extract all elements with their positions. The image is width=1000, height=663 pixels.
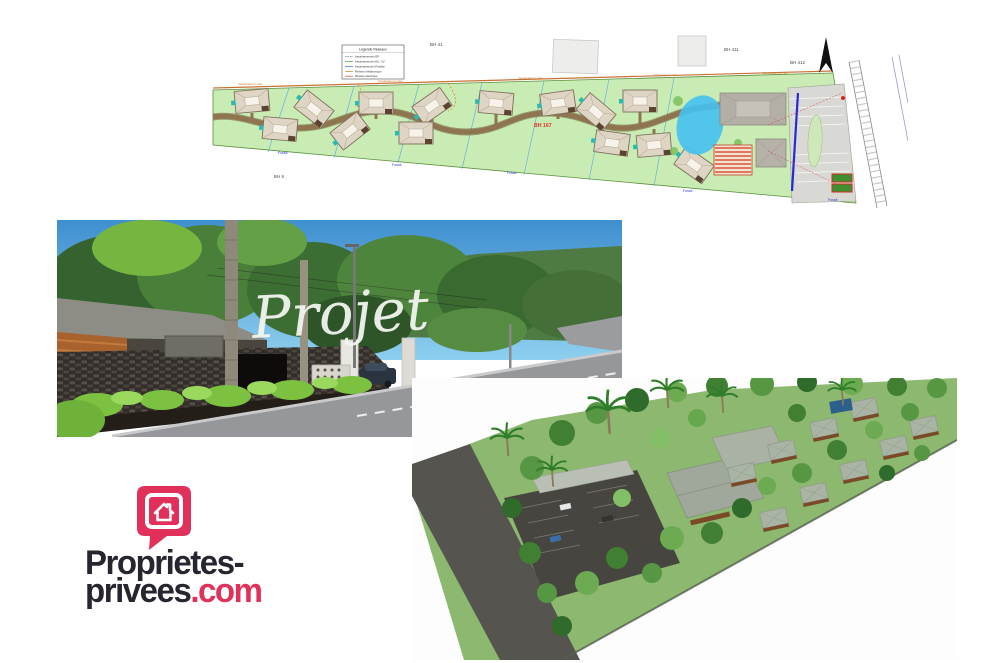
logo-text-privees: privees: [85, 572, 190, 610]
label-canalisation: Canalisation à créer: [653, 73, 678, 77]
aerial-view-image[interactable]: [412, 378, 957, 660]
site-plan-image[interactable]: Légende Réseaux Assainissement EP Assain…: [208, 33, 908, 213]
metal-panel: [165, 336, 223, 357]
label-canalisation: Canalisation à créer: [238, 82, 263, 86]
striped-panel: [714, 145, 752, 175]
listing-collage: Légende Réseaux Assainissement EP Assain…: [0, 0, 1000, 663]
legend-item: Réseau électrique: [355, 74, 378, 78]
legend-item: Réseau téléphonique: [355, 70, 382, 74]
label-bh41: BH 41: [430, 42, 443, 47]
red-marker-dot: [841, 96, 845, 100]
north-arrow-icon: [819, 37, 833, 73]
logo-text-com: .com: [190, 572, 261, 610]
label-bh412: BH 412: [790, 60, 806, 65]
boundary-road: [849, 55, 908, 208]
label-bh411: BH 411: [724, 47, 739, 52]
projet-overlay-text: Projet: [249, 275, 431, 352]
neighbour-buildings: [552, 36, 706, 74]
logo-bubble-house-icon: [135, 484, 193, 550]
label-fosse: Fossé: [683, 189, 693, 193]
legend-box: Légende Réseaux Assainissement EP Assain…: [342, 45, 404, 79]
green-sign-1: [832, 174, 852, 182]
label-bh6: BH 6: [274, 174, 285, 179]
label-fosse: Fossé: [507, 171, 517, 175]
logo-text-line2: privees.com: [85, 578, 298, 604]
green-sign-2: [832, 184, 852, 192]
label-canalisation: Canalisation à créer: [518, 76, 543, 80]
legend-title: Légende Réseaux: [359, 48, 387, 52]
legend-item: Assainissement EP: [355, 55, 379, 59]
label-fosse: Fossé: [278, 151, 288, 155]
label-canalisation: Canalisation à créer: [763, 71, 788, 75]
label-fosse: Fossé: [828, 198, 838, 202]
label-bh167: BH 167: [534, 123, 552, 129]
legend-item: Assainissement Potable: [355, 65, 385, 69]
legend-item: Assainissement EU, CV: [355, 60, 385, 64]
label-canalisation: Canalisation à créer: [378, 79, 403, 83]
label-fosse: Fossé: [392, 163, 402, 167]
proprietes-privees-logo[interactable]: Proprietes- privees.com: [85, 484, 305, 604]
